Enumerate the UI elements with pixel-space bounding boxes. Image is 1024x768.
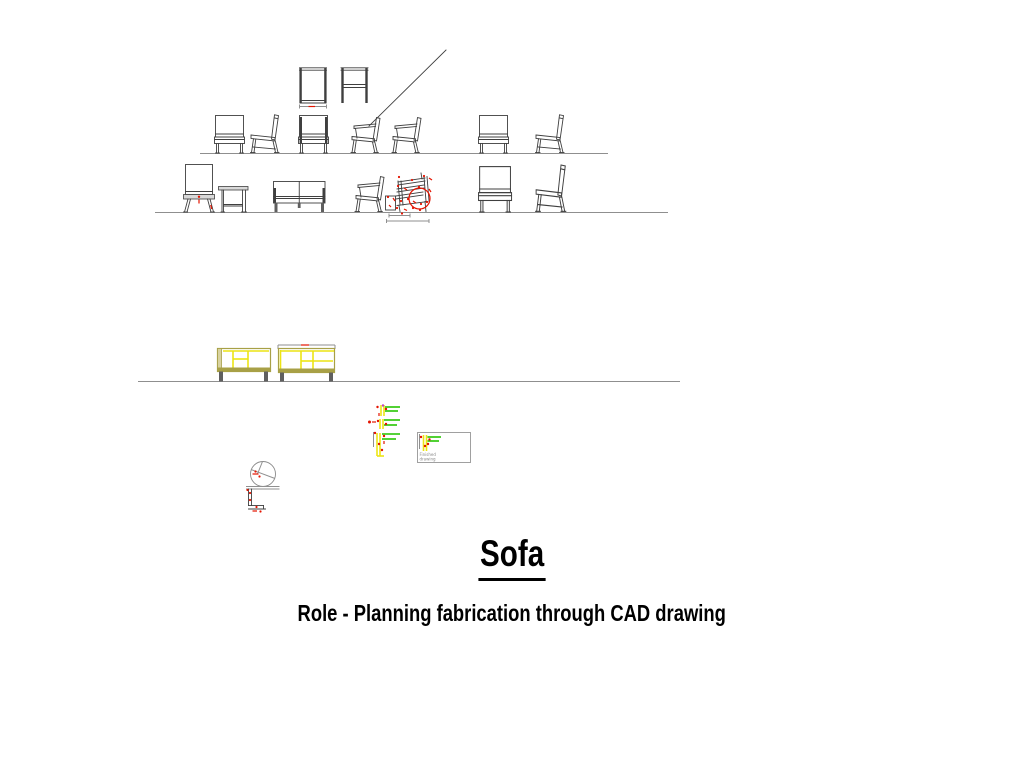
- title-block-label-line2: drawing: [420, 457, 437, 462]
- concept-elevation-row-2: [155, 165, 668, 224]
- page-title: Sofa: [0, 533, 1024, 581]
- joint-detail-b: [368, 419, 400, 429]
- yellow-sofa-frame-front-left: [218, 349, 271, 382]
- joint-detail-cluster: [368, 404, 400, 456]
- chair-side: [251, 115, 280, 153]
- slide-canvas: Finished drawing Sofa: [0, 0, 1024, 768]
- armchair-side: [392, 118, 421, 153]
- chair-top-view-drawing: [300, 68, 327, 109]
- armchair-side: [355, 177, 384, 212]
- chair-side: [536, 115, 565, 153]
- chair-front-dark-posts: [299, 116, 329, 154]
- joint-detail-a: [376, 404, 400, 416]
- page-subtitle-text: Role - Planning fabrication through CAD …: [298, 600, 726, 627]
- leg-joint-detail: [246, 462, 280, 513]
- page-title-text: Sofa: [478, 533, 545, 581]
- chair-side: [536, 165, 566, 211]
- dimension-bracket: [300, 105, 327, 109]
- chair-front: [479, 116, 509, 154]
- detail-callout-circle: [409, 188, 430, 209]
- concept-elevation-row-1: [200, 115, 608, 154]
- chair-front: [479, 167, 512, 212]
- yellow-sofa-frame-front-right: [278, 345, 335, 382]
- frame-elevation-row-3: [138, 345, 680, 382]
- page-subtitle: Role - Planning fabrication through CAD …: [0, 600, 1024, 627]
- two-seat-sofa-front: [274, 182, 326, 213]
- annotated-chair-side: [386, 173, 433, 223]
- armchair-side: [351, 118, 380, 153]
- title-block: Finished drawing: [418, 433, 471, 463]
- pointer-line: [369, 50, 446, 126]
- cad-drawing-svg: Finished drawing: [0, 0, 1024, 768]
- chair-front: [215, 116, 245, 154]
- table-side: [219, 187, 249, 213]
- dimension-brackets: [387, 214, 430, 224]
- frame-front-view-drawing: [341, 68, 368, 103]
- big-back-chair-front: [184, 165, 215, 213]
- joint-detail-c: [374, 432, 401, 456]
